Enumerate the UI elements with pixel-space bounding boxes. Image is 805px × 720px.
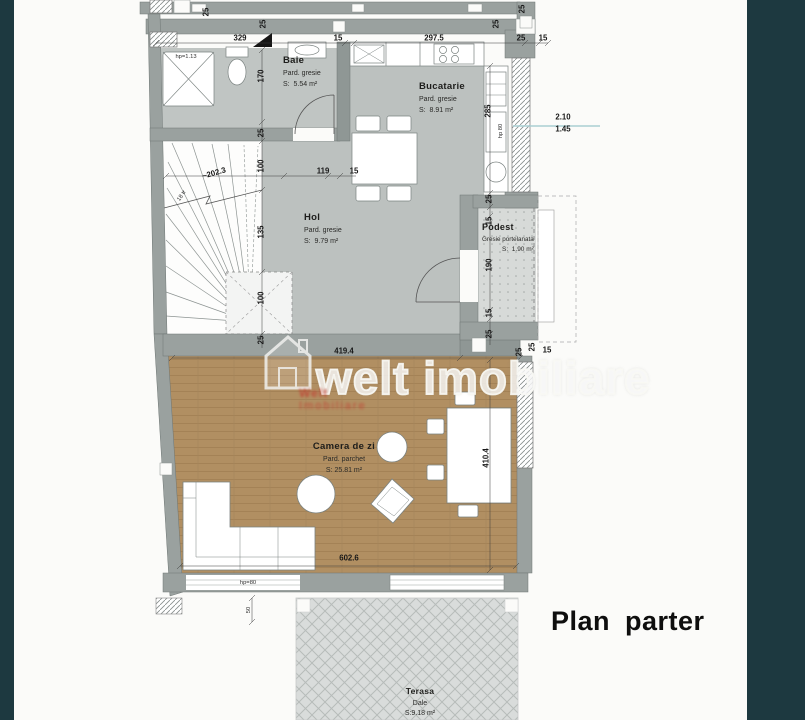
dining-table [447,408,511,503]
living-window-bottom-left [186,575,300,590]
toilet-tank-icon [226,47,248,57]
dining-chair [458,505,478,517]
agency-stamp: Welt Imobiliare [299,386,367,414]
stamp-line-1: Welt [299,386,367,400]
stamp-line-2: Imobiliare [299,400,367,413]
dining-chair [427,465,444,480]
side-table-icon [377,432,407,462]
plan-title: Plan parter [551,606,705,637]
kitchen-round-sink-icon [486,162,506,182]
shaft-marker [253,33,272,47]
floor-plan-page: { "title": "Plan parter", "watermark": {… [0,0,805,720]
kitchen-window [512,58,530,192]
kitchen-table [352,133,417,184]
kitchen-chair [387,186,411,201]
coffee-table-icon [297,475,335,513]
dining-chair [427,419,444,434]
kitchen-chair [356,116,380,131]
toilet-icon [228,59,246,85]
kitchen-chair [356,186,380,201]
living-window-bottom-right [390,575,504,590]
kitchen-chair [387,116,411,131]
